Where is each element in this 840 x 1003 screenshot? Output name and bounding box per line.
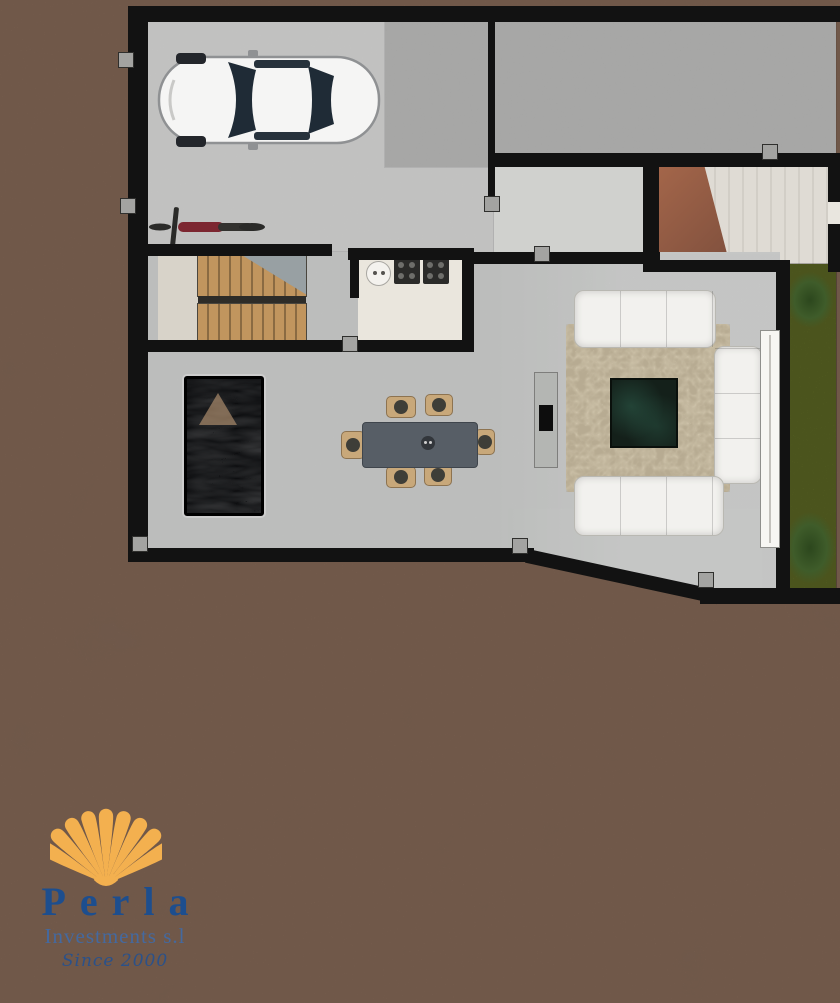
cooktop-right: [423, 258, 449, 284]
wall-entry-left: [643, 153, 659, 272]
water-highlight: [199, 393, 237, 425]
tv-screen: [539, 405, 553, 431]
sofa-bottom: [574, 476, 724, 536]
dining-chair: [425, 394, 453, 416]
sliding-glass-door: [760, 330, 780, 548]
pillar-cap: [120, 198, 136, 214]
centerpiece-dot: [429, 441, 432, 444]
wall-kitchen-right: [462, 248, 474, 352]
shell-icon: [50, 796, 162, 888]
stair-landing-line: [198, 296, 306, 304]
burner-icon: [438, 273, 444, 279]
door-rail: [769, 335, 771, 542]
sink-tap-dot: [373, 271, 377, 275]
chair-seat: [432, 398, 446, 412]
sofa-right: [714, 346, 762, 484]
burner-icon: [409, 262, 415, 268]
dining-table: [362, 422, 478, 468]
stair-upper-flight: [198, 256, 306, 296]
burner-icon: [409, 273, 415, 279]
logo-tagline-text: Since 2000: [8, 953, 222, 970]
pillar-cap: [132, 536, 148, 552]
pillar-cap: [484, 196, 500, 212]
pillar-cap: [534, 246, 550, 262]
pillar-cap: [698, 572, 714, 588]
water-streaks: [187, 379, 261, 513]
stair-side-landing: [158, 254, 200, 342]
dining-chair: [475, 429, 495, 455]
dining-chair: [386, 466, 416, 488]
water-feature: [184, 376, 264, 516]
dining-chair: [386, 396, 416, 418]
burner-icon: [398, 273, 404, 279]
cooktop-left: [394, 258, 420, 284]
wall-kitchen-left-stub: [350, 248, 359, 298]
hedge-top: [786, 272, 834, 328]
wall-kitchen-top: [348, 248, 474, 260]
pillar-cap: [118, 52, 134, 68]
wall-hall-bottom: [464, 252, 660, 264]
wall-gravel-bottom: [494, 153, 836, 167]
pillar-cap: [762, 144, 778, 160]
wall-entry-bottom: [659, 260, 781, 272]
kitchen-sink: [366, 261, 391, 286]
burner-icon: [398, 262, 404, 268]
chair-seat: [394, 400, 408, 414]
chair-seat: [478, 435, 492, 449]
sofa-cushion-seams: [575, 477, 723, 535]
logo-brand-text: Perla: [8, 882, 222, 922]
logo-subtitle-text: Investments s.l: [8, 926, 222, 947]
centerpiece-dot: [424, 441, 427, 444]
floor-plan-canvas: Perla Investments s.l Since 2000: [0, 0, 840, 1003]
chair-seat: [394, 470, 408, 484]
burner-icon: [438, 262, 444, 268]
stair-lower-flight: [198, 304, 306, 342]
wall-top: [132, 6, 840, 22]
chair-seat: [346, 438, 360, 452]
chair-seat: [431, 468, 445, 482]
wall-stairs-kitchen-bottom: [136, 340, 474, 352]
sofa-top: [574, 290, 716, 348]
stair-concrete-cut: [198, 256, 306, 296]
coffee-table: [610, 378, 678, 448]
entry-door-opening: [828, 202, 840, 224]
wall-living-bottom: [128, 548, 534, 562]
burner-icon: [427, 273, 433, 279]
wall-driveway-divider: [488, 20, 495, 210]
sofa-cushion-seams: [575, 291, 715, 347]
pillar-cap: [512, 538, 528, 554]
car-top-view: [156, 50, 384, 150]
pillar-cap: [342, 336, 358, 352]
wall-left: [128, 6, 148, 562]
tv-console: [534, 372, 558, 468]
wall-bottom-right: [700, 588, 840, 604]
sofa-cushion-seams: [715, 347, 761, 483]
table-centerpiece: [421, 436, 435, 450]
burner-icon: [427, 262, 433, 268]
hedge-bottom: [784, 512, 836, 584]
hallway-floor: [494, 160, 644, 264]
garden-strip: [782, 264, 836, 600]
wall-stairs-top: [136, 244, 332, 256]
sink-drain-dot: [381, 271, 385, 275]
